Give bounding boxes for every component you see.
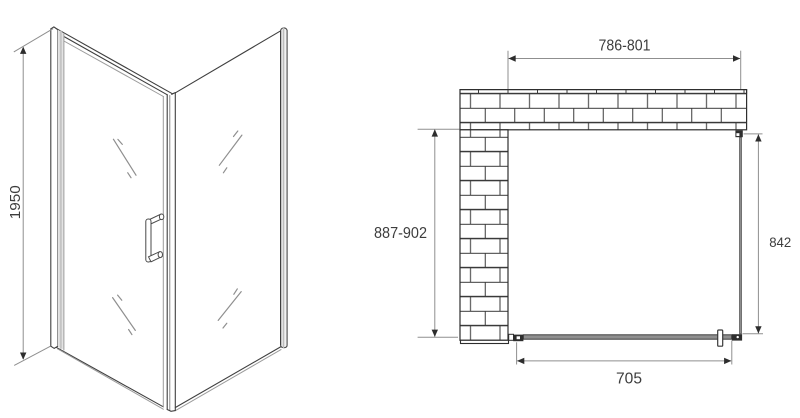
svg-text:842: 842 [769, 234, 791, 250]
svg-text:786-801: 786-801 [599, 37, 651, 54]
svg-text:705: 705 [616, 370, 642, 387]
svg-text:887-902: 887-902 [374, 225, 427, 242]
svg-text:1950: 1950 [8, 185, 24, 219]
